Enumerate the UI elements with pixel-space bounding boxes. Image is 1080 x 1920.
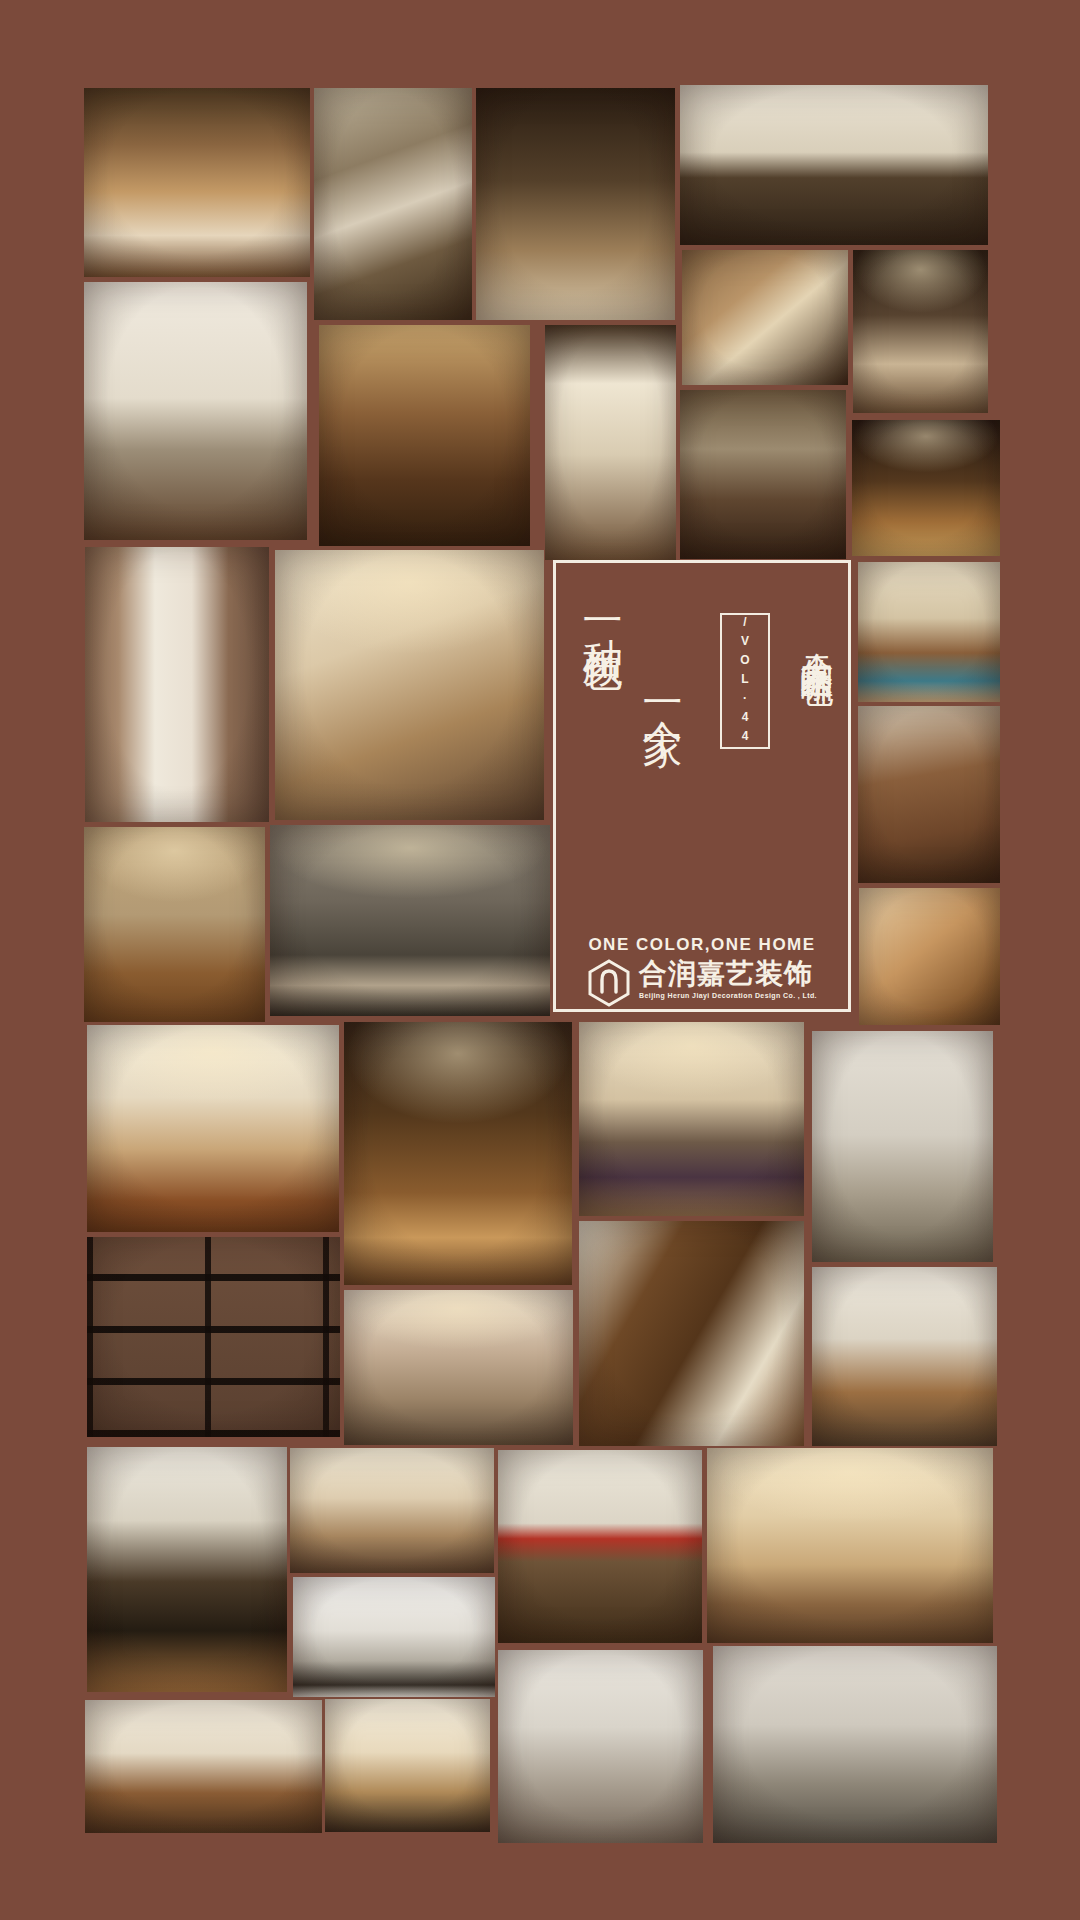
photo-beige-sectional-living [290,1448,494,1573]
photo-home-bar-counter [812,1267,997,1446]
photo-spotlight-leather-sofa [84,282,307,540]
photo-gray-sofa-dining [498,1650,703,1843]
photo-breakfast-bar-kitchen [84,827,265,1022]
photo-drum-pendant-dining [853,250,988,413]
photo-cage-pendant-kitchen [87,1447,287,1692]
photo-gray-apartment-living [812,1031,993,1262]
photo-sheepskin-stools-lounge [476,88,675,320]
photo-tufted-sofa-birch-wall [680,85,988,245]
volume-badge: /VOL·44 [720,613,770,749]
photo-cowhide-pillow-sofa [84,88,310,277]
photo-white-minimal-study [293,1577,495,1697]
volume-label: /VOL·44 [738,615,752,748]
slogan-line-1: 一种颜色 [576,599,631,627]
photo-armchair-xox-detail [325,1699,490,1832]
brand-hexagon-icon [587,959,631,1007]
photo-brown-curtains [85,547,269,822]
photo-copper-bathtub [319,325,530,546]
photo-wooden-bowl-detail [682,250,848,385]
photo-chandelier-living [707,1448,993,1643]
brand-lockup: 合润嘉艺装饰 Beijing Herun Jiayi Decoration De… [556,959,848,1007]
main-title: 今天的家是咖啡色 [794,627,839,651]
photo-stone-chimney-great-room [314,88,472,320]
mood-board-poster: 一种颜色 一个家 /VOL·44 今天的家是咖啡色 ONE COLOR,ONE … [0,0,1080,1920]
photo-coffered-ceiling-bedroom [87,1025,339,1232]
photo-stone-fireplace-living [680,390,846,559]
photo-red-chair-living [498,1450,702,1643]
photo-fur-throw-detail [859,888,1000,1025]
photo-wood-panel-living [579,1221,804,1446]
photo-gray-sectional-frames [713,1646,997,1843]
brand-name-en: Beijing Herun Jiayi Decoration Design Co… [639,992,817,999]
brand-name-cn: 合润嘉艺装饰 [639,959,817,989]
brand-text: 合润嘉艺装饰 Beijing Herun Jiayi Decoration De… [639,959,817,999]
tagline-en: ONE COLOR,ONE HOME [556,935,848,955]
photo-taupe-cove-living [344,1290,573,1445]
slogan-line-2: 一个家 [636,681,691,702]
photo-birch-floor-lamp [545,325,676,560]
photo-taupe-bedroom [270,825,550,1016]
photo-chinese-style-bedroom [858,562,1000,702]
title-panel: 一种颜色 一个家 /VOL·44 今天的家是咖啡色 ONE COLOR,ONE … [553,560,851,1012]
photo-lodge-loft-interior [852,420,1000,556]
photo-lodge-loft-living [344,1022,572,1285]
photo-leather-sofa-cowhide [858,706,1000,883]
photo-hotel-bedroom-purple [579,1022,804,1216]
photo-brick-texture [87,1237,340,1437]
photo-tufted-headboard-bedroom [275,550,544,820]
photo-ranch-living-room [85,1700,322,1833]
